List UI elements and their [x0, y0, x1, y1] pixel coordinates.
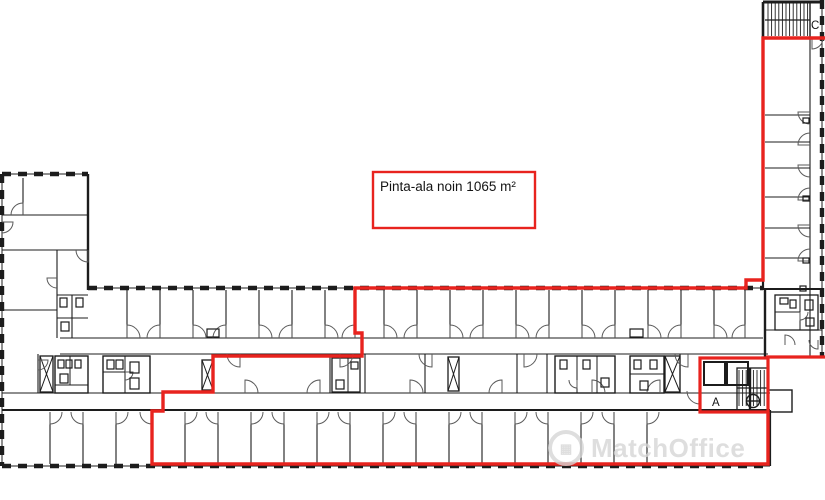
door-arc — [185, 412, 197, 424]
plan-rect — [630, 329, 643, 337]
door-arc — [127, 325, 140, 338]
plan-rect — [336, 380, 344, 389]
door-arc — [648, 325, 661, 338]
plan-rect — [61, 322, 69, 331]
door-arc — [404, 325, 417, 338]
plan-rect — [780, 298, 788, 304]
door-arc — [582, 325, 595, 338]
stairwell-a-label: A — [712, 397, 720, 409]
door-arc — [602, 325, 615, 338]
door-arc — [404, 412, 416, 424]
door-arc — [647, 412, 659, 424]
floor-plan-canvas: Pinta-ala noin 1065 m² C A — [0, 0, 825, 500]
door-arc — [536, 412, 548, 424]
plan-rect — [60, 298, 67, 307]
door-arc — [325, 325, 338, 338]
door-arc — [516, 325, 529, 338]
door-arc — [342, 325, 355, 338]
door-arc — [798, 225, 810, 237]
plan-rect — [805, 300, 813, 310]
door-arc — [116, 412, 128, 424]
plan-rect — [58, 360, 64, 368]
door-arc — [307, 380, 320, 393]
door-arc — [76, 250, 88, 262]
door-arc — [569, 380, 577, 388]
plan-rect — [560, 360, 567, 369]
plan-rect — [66, 360, 72, 368]
plan-rect — [634, 360, 641, 369]
door-arc — [245, 380, 258, 393]
stairwell-c-label: C — [811, 20, 819, 32]
plan-rect — [130, 378, 139, 389]
door-arc — [785, 335, 795, 345]
door-arc — [338, 412, 350, 424]
door-arc — [647, 380, 660, 393]
lease-outline-main — [152, 38, 825, 464]
plan-rect — [130, 362, 139, 373]
door-arc — [206, 412, 218, 424]
plan-rect — [583, 360, 590, 369]
door-arc — [71, 412, 83, 424]
door-arc — [317, 412, 329, 424]
door-arc — [602, 412, 614, 424]
door-arc — [450, 325, 463, 338]
plan-rect — [737, 368, 768, 410]
door-arc — [798, 188, 810, 200]
door-arc — [470, 325, 483, 338]
door-arc — [798, 165, 810, 177]
plan-rect — [704, 362, 725, 385]
door-arc — [515, 412, 527, 424]
area-label-text: Pinta-ala noin 1065 m² — [380, 179, 516, 194]
plan-rect — [75, 360, 81, 368]
door-arc — [259, 325, 272, 338]
door-arc — [11, 203, 23, 215]
door-arc — [140, 412, 152, 424]
door-arc — [383, 412, 395, 424]
floor-plan: Pinta-ala noin 1065 m² C A ▦ MatchOffice — [0, 0, 825, 500]
stair-hatching — [737, 3, 810, 406]
door-arc — [470, 412, 482, 424]
door-arc — [668, 325, 681, 338]
plan-rect — [116, 360, 123, 369]
plan-rect — [76, 298, 83, 307]
door-arc — [714, 325, 727, 338]
door-arc — [732, 325, 745, 338]
door-arc — [410, 380, 423, 393]
plan-rect — [351, 362, 358, 369]
door-arc — [581, 412, 593, 424]
door-arc — [449, 412, 461, 424]
plan-rect — [768, 390, 792, 412]
plan-rect — [107, 360, 114, 369]
door-arc — [524, 354, 537, 367]
door-arc — [193, 325, 206, 338]
door-arc — [47, 278, 57, 288]
toilet-fixtures — [58, 118, 814, 390]
door-arc — [272, 412, 284, 424]
door-arc — [800, 312, 808, 320]
door-arc — [798, 249, 810, 261]
door-arc — [147, 325, 160, 338]
plan-rect — [640, 381, 648, 390]
plan-rect — [650, 360, 657, 369]
door-arc — [279, 325, 292, 338]
door-arc — [50, 412, 62, 424]
lease-outline — [152, 38, 825, 464]
door-arc — [384, 325, 397, 338]
door-arc — [798, 133, 810, 145]
door-arc — [536, 325, 549, 338]
plan-rect — [103, 356, 150, 393]
area-label-box: Pinta-ala noin 1065 m² — [373, 172, 535, 228]
plan-rect — [790, 300, 796, 308]
plan-rect — [60, 374, 68, 383]
door-arc — [251, 412, 263, 424]
door-arc — [489, 380, 502, 393]
